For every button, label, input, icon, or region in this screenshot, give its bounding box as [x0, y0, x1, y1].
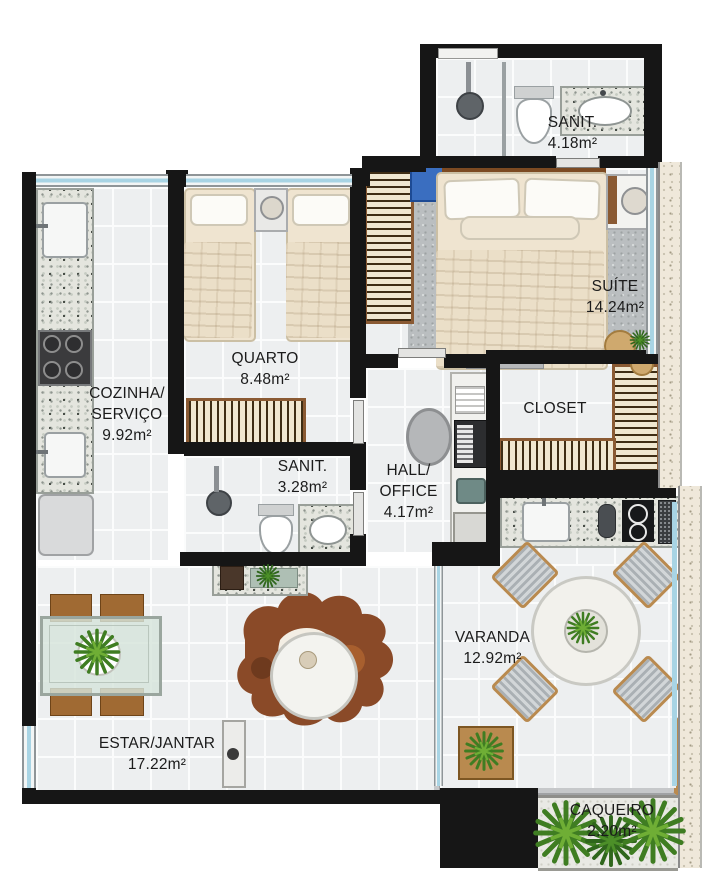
room-label-quarto: QUARTO 8.48m² [190, 348, 340, 390]
room-label-suite: SUÍTE 14.24m² [540, 276, 690, 318]
room-label-estar: ESTAR/JANTAR 17.22m² [72, 733, 242, 775]
room-label-cozinha: COZINHA/ SERVIÇO 9.92m² [52, 383, 202, 446]
floor-plan: SANIT. 4.18m² SUÍTE 14.24m² QUARTO 8.48m… [0, 0, 718, 880]
room-label-hall-office: HALL/ OFFICE 4.17m² [366, 460, 451, 523]
room-label-caqueiro: CAQUEIRO 2.20m² [537, 800, 687, 842]
room-label-varanda: VARANDA 12.92m² [420, 627, 565, 669]
room-label-closet: CLOSET [480, 398, 630, 419]
room-label-sanit-social: SANIT. 3.28m² [235, 456, 370, 498]
room-label-sanit-suite: SANIT. 4.18m² [500, 112, 645, 154]
